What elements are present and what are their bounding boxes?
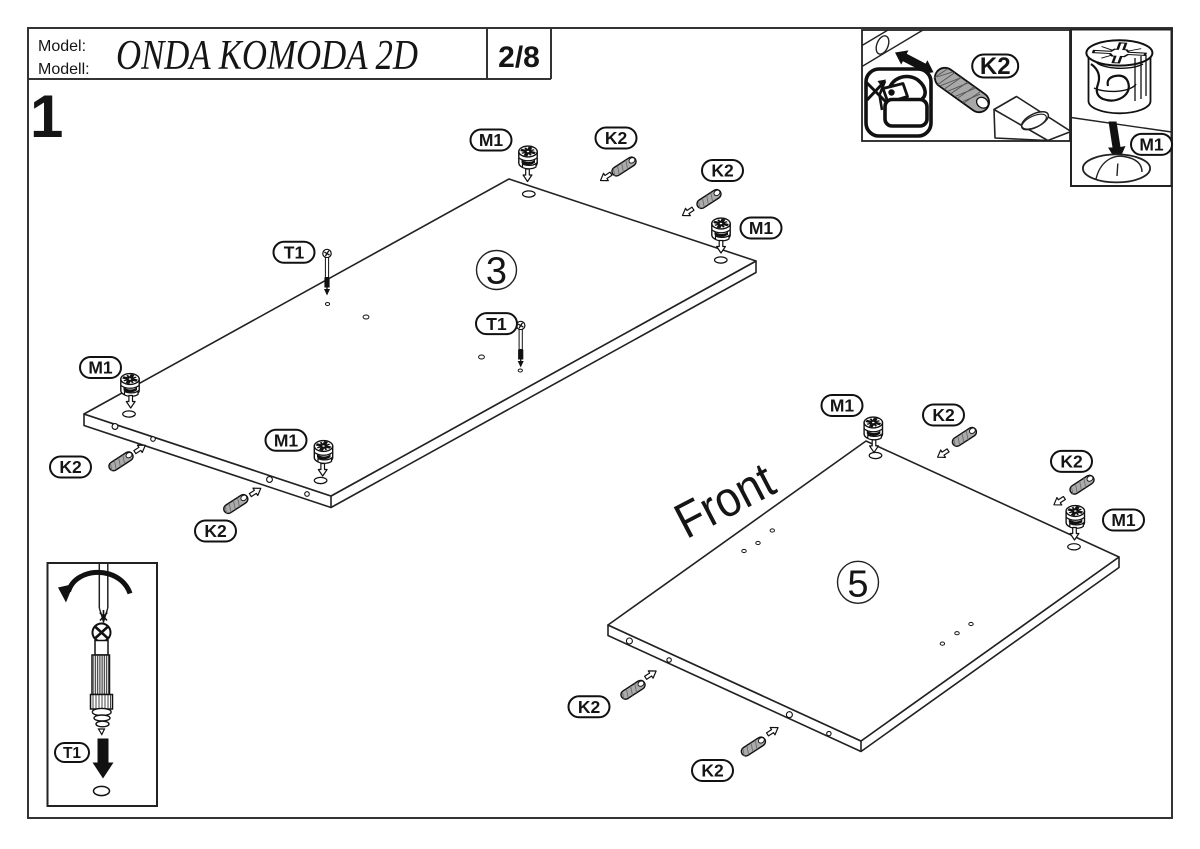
svg-text:M1: M1 xyxy=(1111,510,1136,530)
svg-text:M1: M1 xyxy=(88,358,113,378)
svg-text:M1: M1 xyxy=(749,218,774,238)
svg-text:T1: T1 xyxy=(63,745,81,762)
svg-text:K2: K2 xyxy=(1060,452,1083,472)
svg-text:M1: M1 xyxy=(274,431,299,451)
svg-text:T1: T1 xyxy=(486,314,507,334)
svg-text:1: 1 xyxy=(30,83,63,150)
svg-text:K2: K2 xyxy=(578,697,601,717)
svg-text:5: 5 xyxy=(847,564,868,606)
svg-text:K2: K2 xyxy=(711,161,734,181)
svg-text:K2: K2 xyxy=(980,53,1011,80)
svg-text:K2: K2 xyxy=(59,457,82,477)
svg-text:M1: M1 xyxy=(830,396,855,416)
svg-text:K2: K2 xyxy=(605,128,628,148)
svg-text:M1: M1 xyxy=(1139,135,1164,155)
svg-text:3: 3 xyxy=(486,251,507,293)
svg-text:M1: M1 xyxy=(479,130,504,150)
svg-text:K2: K2 xyxy=(204,521,227,541)
svg-text:Modell:: Modell: xyxy=(38,61,90,78)
svg-text:T1: T1 xyxy=(284,243,305,263)
svg-text:K2: K2 xyxy=(932,405,955,425)
svg-text:Model:: Model: xyxy=(38,38,86,55)
svg-text:2/8: 2/8 xyxy=(498,41,540,74)
svg-text:ONDA KOMODA 2D: ONDA KOMODA 2D xyxy=(116,33,418,79)
svg-text:K2: K2 xyxy=(701,761,724,781)
